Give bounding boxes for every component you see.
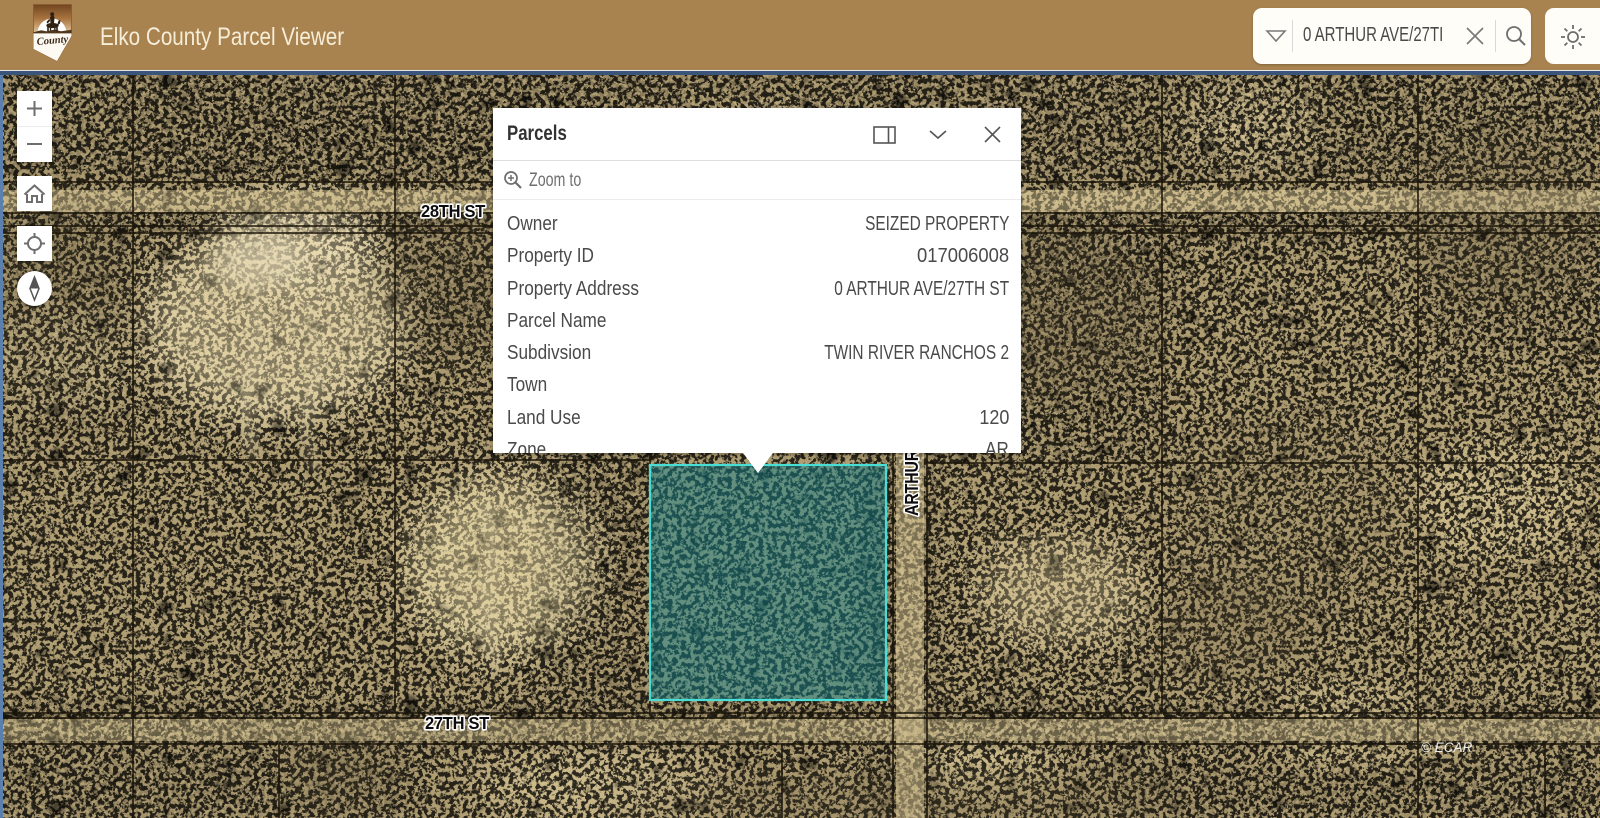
svg-text:28TH ST: 28TH ST [421,201,486,221]
svg-text:27TH ST: 27TH ST [425,713,490,733]
svg-text:© ECAR: © ECAR [1421,740,1472,755]
svg-text:ARTHUR: ARTHUR [901,450,922,516]
